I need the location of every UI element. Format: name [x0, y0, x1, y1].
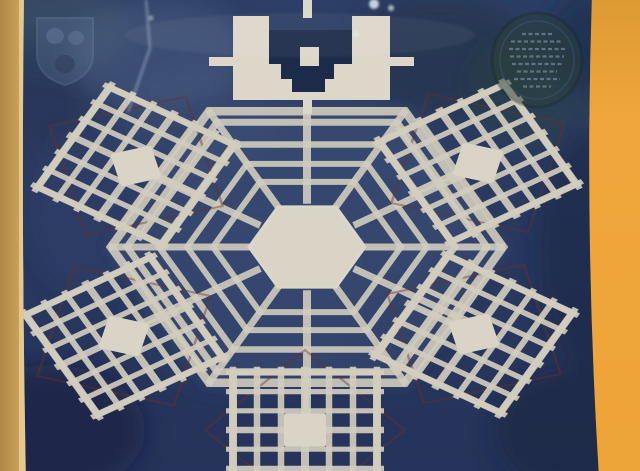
city-plan-map: [0, 0, 640, 471]
glare-spot: [388, 5, 394, 11]
map-photo: [0, 0, 640, 471]
cartouche-left-crest: [37, 18, 93, 85]
citadel-block: [388, 57, 414, 66]
glare-sheen: [125, 13, 475, 57]
cartouche-right-text: [492, 13, 582, 107]
text-cartouche-frame: [492, 13, 582, 107]
glare-spot: [149, 16, 154, 21]
shield-crest-icon: [37, 18, 93, 85]
crest-detail: [68, 31, 84, 45]
citadel-courtyard: [281, 64, 334, 79]
district-plaza: [284, 413, 326, 447]
citadel-block: [303, 100, 312, 114]
photo-of-city-plan: [0, 0, 640, 471]
crest-detail: [55, 55, 75, 73]
citadel-block: [209, 57, 235, 66]
crest-detail: [46, 28, 64, 44]
district-grid-bottom: [205, 350, 405, 471]
citadel-courtyard: [292, 79, 325, 92]
